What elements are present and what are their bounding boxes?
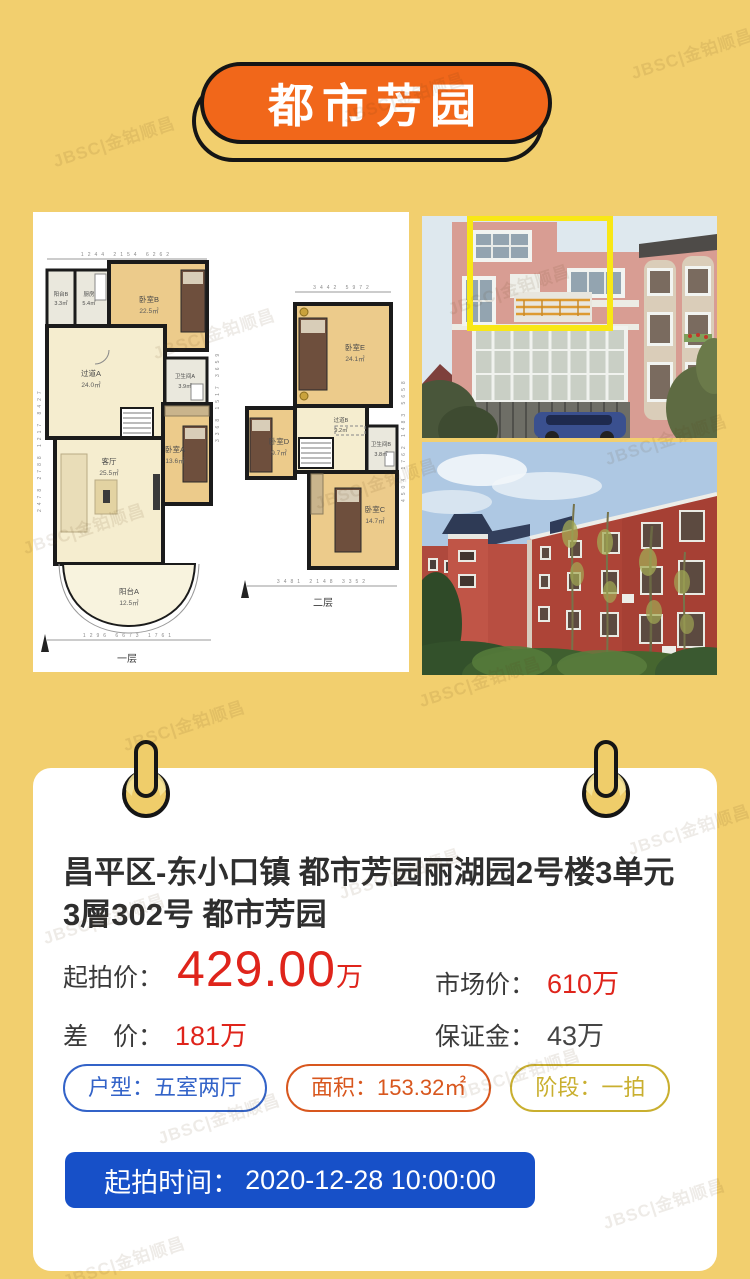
listing-page: 都市芳园 1244 2154 6262 1296 6673 1761 2478 … — [0, 0, 750, 1279]
start-price-unit: 万 — [336, 955, 363, 994]
room-bedroom-d: 卧室D 9.7㎡ — [247, 408, 295, 478]
room-area: 25.5㎡ — [99, 468, 119, 477]
market-price-value: 610万 — [547, 962, 619, 1001]
compass-north-icon — [241, 580, 249, 598]
room-bedroom-a: 卧室A 13.6㎡ — [163, 404, 211, 504]
floor1-label: 一层 — [117, 653, 137, 665]
floor1-plan: 1244 2154 6262 1296 6673 1761 2478 2788 … — [37, 252, 221, 665]
market-price-row: 市场价： 610万 — [435, 962, 619, 1001]
building-photo-bottom-svg — [422, 442, 717, 675]
floor2-dims-bottom: 3481 2148 3352 — [277, 579, 369, 585]
listing-info-card: 昌平区-东小口镇 都市芳园丽湖园2号楼3单元 3層302号 都市芳园 起拍价： … — [33, 768, 717, 1271]
pushpin-icon — [120, 738, 172, 820]
room-area: 24.0㎡ — [81, 380, 101, 389]
start-price-row: 起拍价： 429.00 万 — [63, 940, 363, 998]
room-label: 阳台A — [119, 586, 139, 596]
start-price-value: 429.00 — [177, 940, 336, 998]
floor1-dims-right: 3368 1517 3659 — [215, 350, 221, 442]
listing-title-line2: 3層302号 都市芳园 — [63, 894, 693, 936]
floor2-plan: 3442 5972 3481 2148 3352 4504 1762 1483 … — [241, 285, 407, 609]
listing-title-line1: 昌平区-东小口镇 都市芳园丽湖园2号楼3单元 — [63, 852, 693, 894]
room-hallway-b: 过道B 9.2㎡ — [295, 406, 367, 472]
tag-stage: 阶段：一拍 — [510, 1064, 670, 1112]
room-label: 卧室A — [165, 444, 185, 454]
room-living: 客厅 25.5㎡ — [55, 438, 163, 564]
pushpin-right — [580, 738, 632, 820]
price-diff-value: 181万 — [175, 1014, 247, 1053]
floorplan-image[interactable]: 1244 2154 6262 1296 6673 1761 2478 2788 … — [33, 212, 409, 672]
room-label: 卫生间B — [371, 440, 392, 448]
room-label: 厨房 — [83, 290, 95, 298]
room-label: 过道B — [334, 416, 349, 424]
tag-layout: 户型：五室两厅 — [63, 1064, 267, 1112]
room-area: 3.9㎡ — [178, 382, 192, 390]
room-label: 卧室E — [345, 342, 365, 352]
room-area: 22.5㎡ — [139, 306, 159, 315]
room-bedroom-c: 卧室C 14.7㎡ — [309, 472, 397, 568]
pushpin-left — [120, 738, 172, 820]
room-area: 9.7㎡ — [271, 448, 287, 457]
deposit-row: 保证金： 43万 — [435, 1014, 604, 1053]
room-area: 5.4㎡ — [82, 299, 96, 307]
listing-title: 昌平区-东小口镇 都市芳园丽湖园2号楼3单元 3層302号 都市芳园 — [63, 852, 693, 936]
room-area: 24.1㎡ — [345, 354, 365, 363]
watermark: JBSC|金铂顺昌 — [627, 21, 750, 84]
compass-north-icon — [41, 634, 49, 652]
sunroom-glazing — [474, 328, 626, 402]
room-kitchen: 厨房 5.4㎡ — [75, 270, 109, 326]
floorplan-svg: 1244 2154 6262 1296 6673 1761 2478 2788 … — [33, 212, 409, 672]
floor1-dims-top: 1244 2154 6262 — [81, 252, 173, 258]
auction-time-label: 起拍时间： — [104, 1161, 239, 1200]
room-bedroom-e: 卧室E 24.1㎡ — [295, 304, 391, 406]
room-area: 9.2㎡ — [334, 426, 348, 434]
room-area: 12.5㎡ — [119, 598, 139, 607]
room-label: 卧室D — [269, 436, 290, 446]
room-bath-a: 卫生间A 3.9㎡ — [165, 358, 207, 404]
floor1-dims-bottom: 1296 6673 1761 — [83, 633, 175, 639]
building-photo-top[interactable] — [422, 216, 717, 438]
room-label: 卫生间A — [175, 372, 196, 380]
tag-row: 户型：五室两厅 面积：153.32㎡ 阶段：一拍 — [63, 1064, 670, 1112]
floor2-label: 二层 — [313, 597, 333, 609]
room-hallway-a: 过道A 24.0㎡ — [47, 326, 165, 438]
price-diff-label: 差 价： — [63, 1017, 163, 1053]
deposit-label: 保证金： — [435, 1017, 535, 1053]
watermark: JBSC|金铂顺昌 — [49, 109, 178, 172]
start-price-label: 起拍价： — [63, 958, 163, 994]
room-balcony-a: 阳台A 12.5㎡ — [59, 564, 199, 633]
room-label: 客厅 — [102, 456, 117, 466]
room-balcony-b: 阳台B 3.3㎡ — [47, 270, 75, 326]
community-name: 都市芳园 — [268, 70, 484, 136]
room-label: 过道A — [81, 368, 101, 378]
parked-car — [534, 412, 626, 438]
room-label: 卧室B — [139, 294, 159, 304]
auction-time-value: 2020-12-28 10:00:00 — [245, 1165, 496, 1196]
room-area: 3.8㎡ — [374, 450, 388, 458]
room-label: 卧室C — [365, 504, 386, 514]
community-name-banner: 都市芳园 — [200, 62, 552, 144]
building-photo-top-svg — [422, 216, 717, 438]
floor1-dims-left: 2478 2788 1217 8427 — [37, 387, 43, 512]
pushpin-icon — [580, 738, 632, 820]
room-area: 13.6㎡ — [165, 456, 185, 465]
floor2-dims-top: 3442 5972 — [313, 285, 373, 291]
balcony-orange-railing — [514, 292, 592, 322]
price-diff-row: 差 价： 181万 — [63, 1014, 247, 1053]
room-bath-b: 卫生间B 3.8㎡ — [367, 426, 397, 474]
room-area: 3.3㎡ — [54, 299, 68, 307]
auction-time-button[interactable]: 起拍时间： 2020-12-28 10:00:00 — [65, 1152, 535, 1208]
building-photo-bottom[interactable] — [422, 442, 717, 675]
deposit-value: 43万 — [547, 1014, 604, 1053]
market-price-label: 市场价： — [435, 965, 535, 1001]
room-label: 阳台B — [54, 290, 69, 298]
room-area: 14.7㎡ — [365, 516, 385, 525]
tag-area: 面积：153.32㎡ — [286, 1064, 491, 1112]
floor2-dims-right: 4504 1762 1483 5658 — [401, 377, 407, 502]
